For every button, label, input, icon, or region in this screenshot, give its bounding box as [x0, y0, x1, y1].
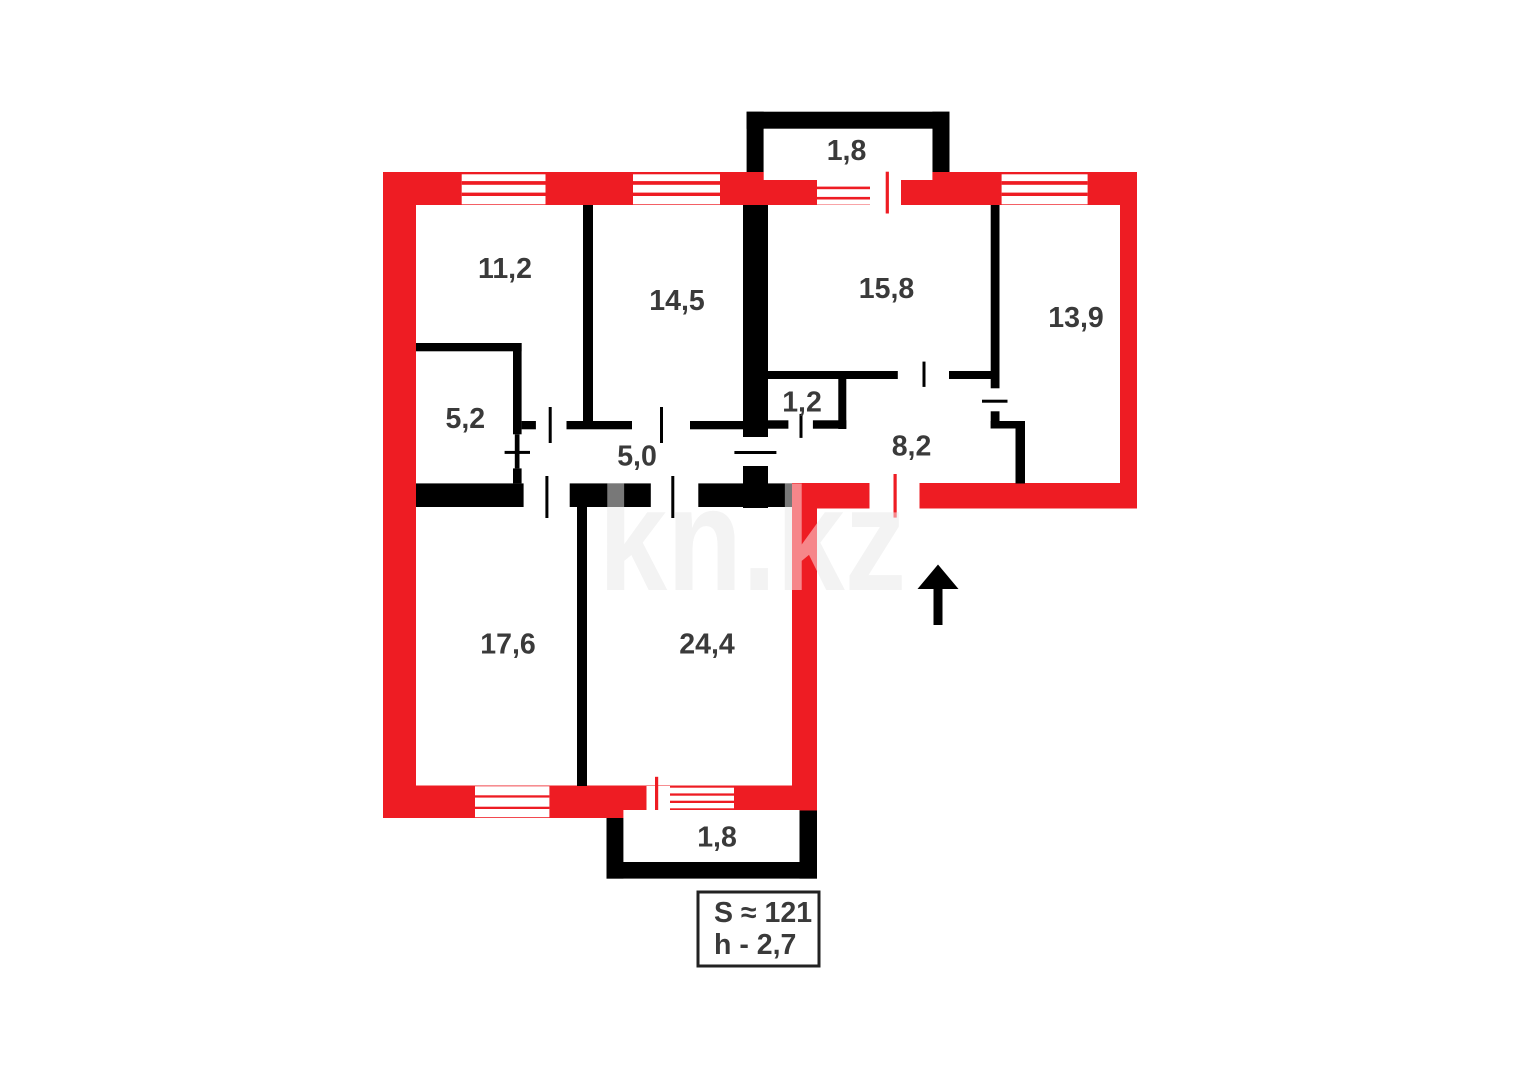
svg-text:kn.kz: kn.kz	[599, 458, 906, 622]
svg-text:1,8: 1,8	[697, 822, 737, 854]
svg-text:8,2: 8,2	[892, 431, 932, 463]
svg-text:17,6: 17,6	[480, 629, 535, 661]
svg-text:24,4: 24,4	[679, 629, 735, 661]
svg-text:h - 2,7: h - 2,7	[714, 929, 796, 961]
svg-text:S ≈ 121: S ≈ 121	[714, 897, 812, 929]
svg-text:1,8: 1,8	[827, 135, 867, 167]
svg-text:5,2: 5,2	[445, 403, 485, 435]
svg-text:14,5: 14,5	[649, 285, 705, 317]
svg-text:15,8: 15,8	[859, 273, 914, 305]
svg-text:13,9: 13,9	[1048, 302, 1103, 334]
svg-text:11,2: 11,2	[478, 253, 532, 285]
svg-text:5,0: 5,0	[617, 441, 657, 473]
svg-text:1,2: 1,2	[782, 386, 822, 418]
